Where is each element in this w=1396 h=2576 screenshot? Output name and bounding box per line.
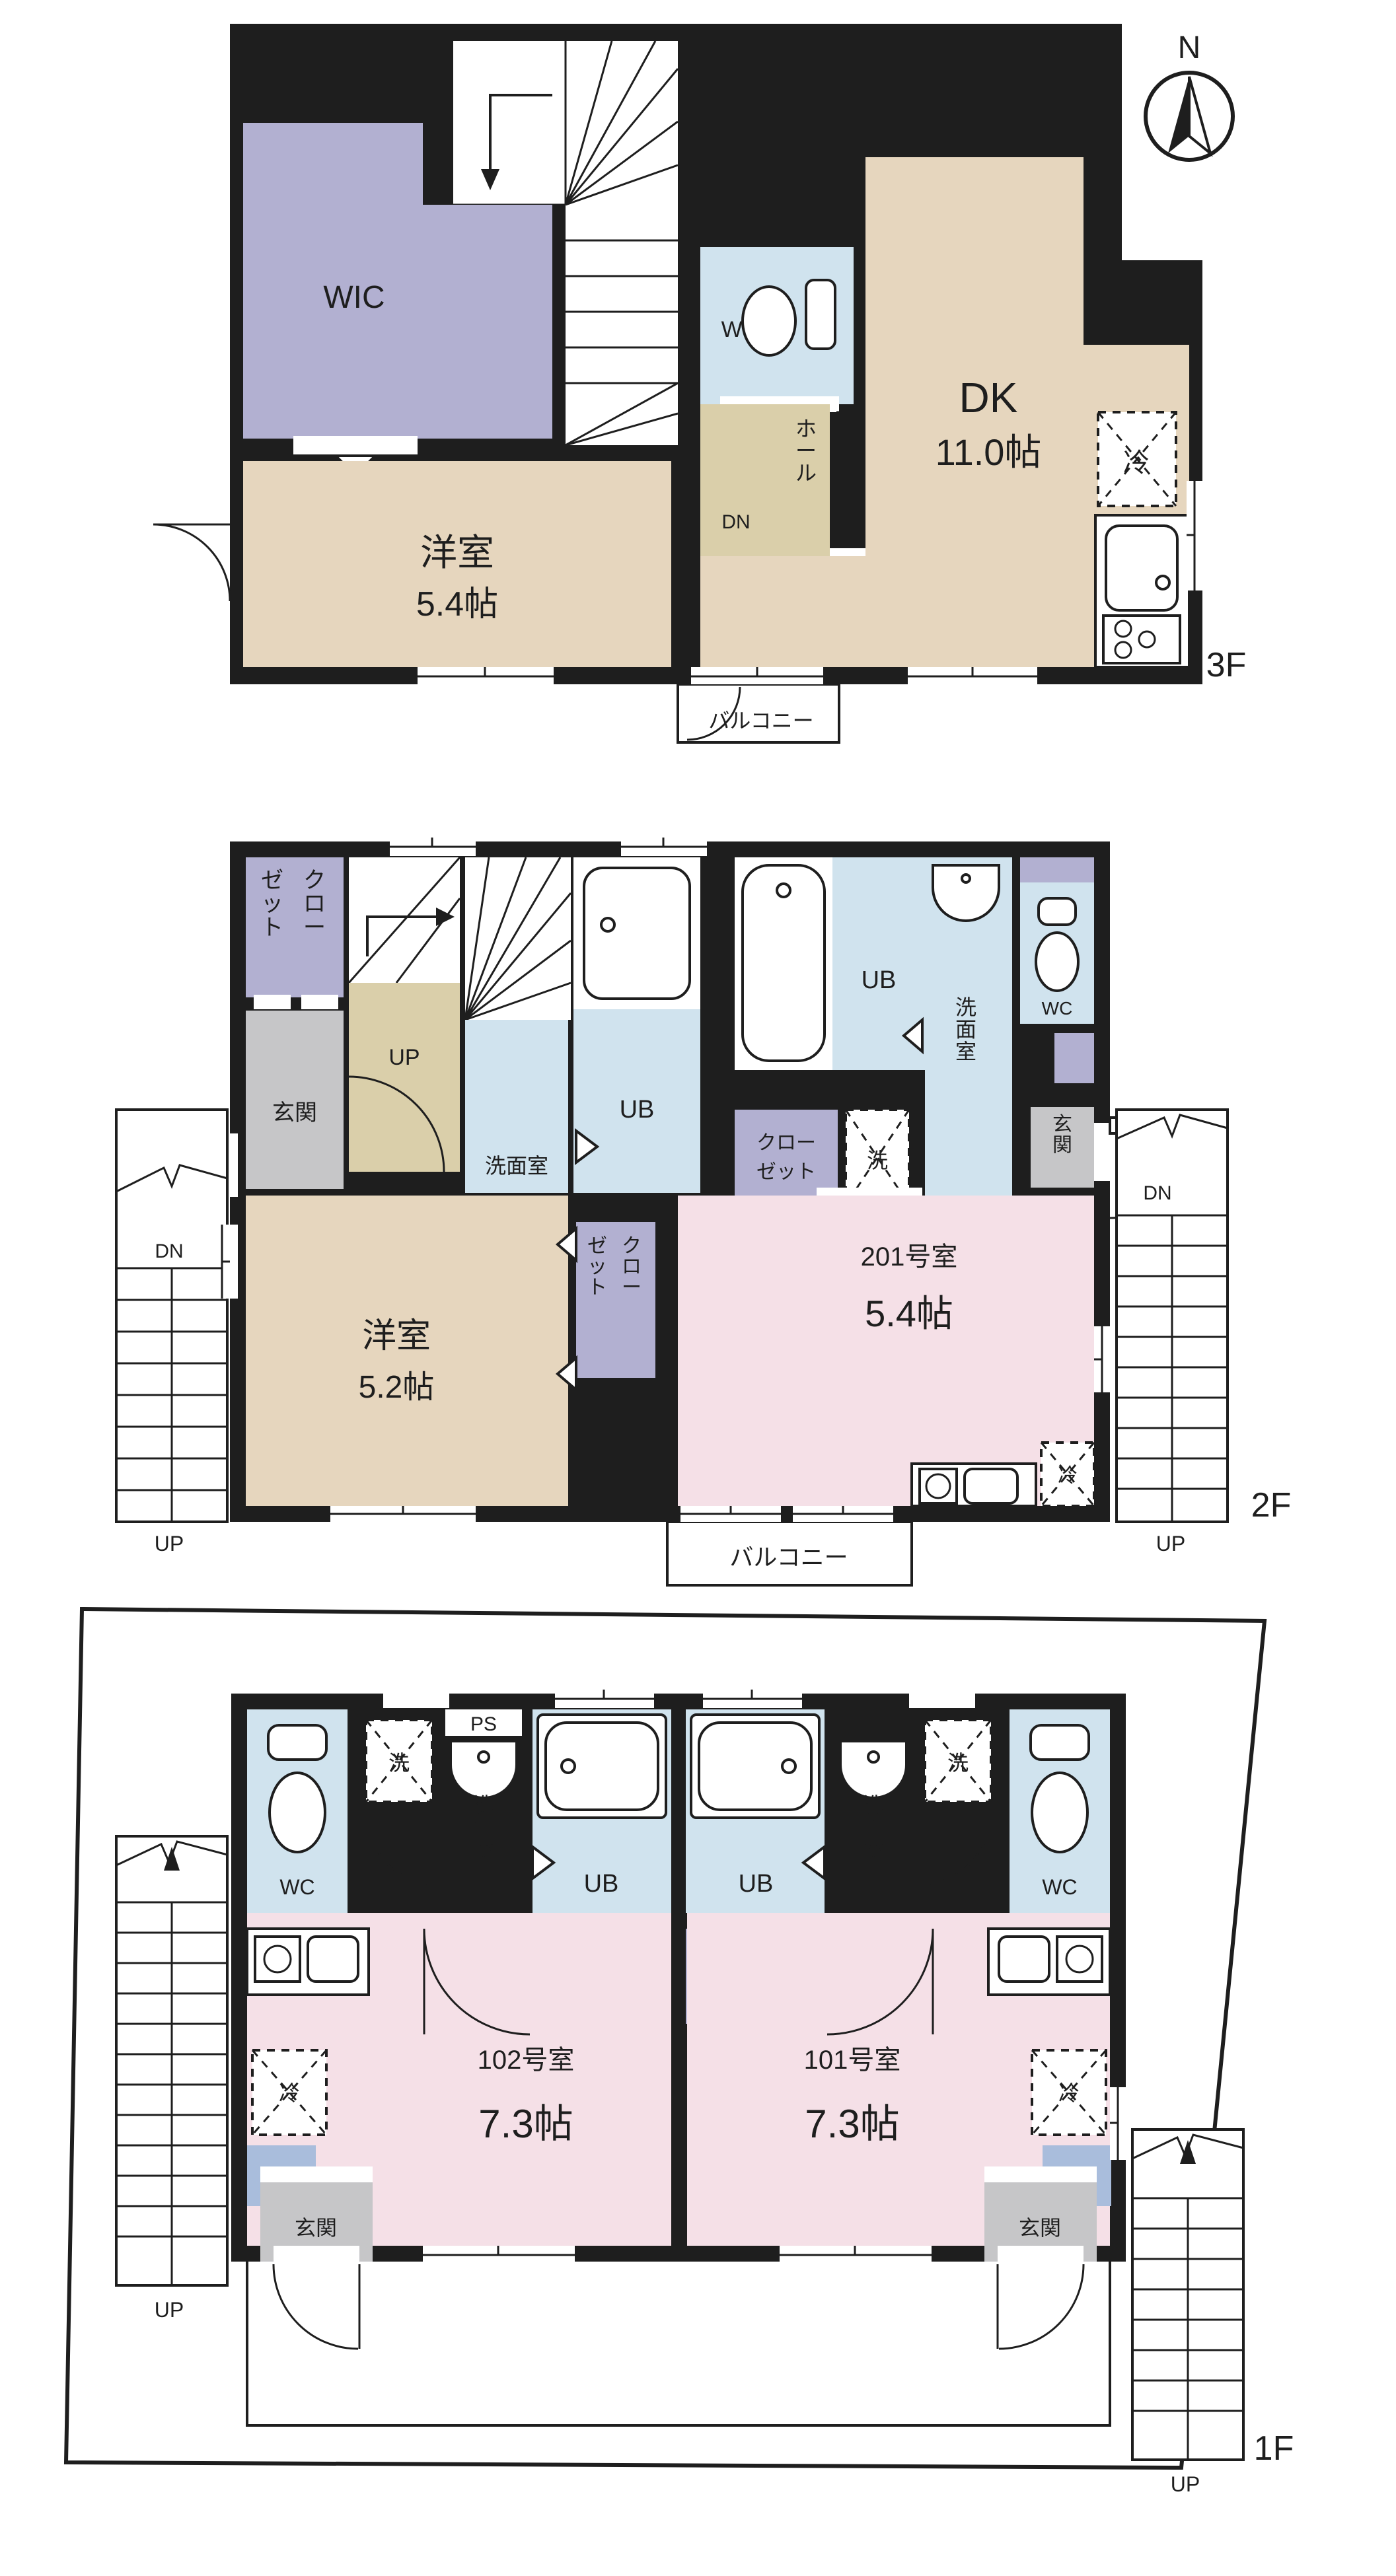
1f-room102-label: 102号室 (478, 2046, 575, 2075)
2f-ext-stairs-left: DN UP (116, 1110, 227, 1556)
svg-text:UP: UP (155, 2298, 184, 2322)
svg-text:洗面室: 洗面室 (863, 1793, 884, 1861)
2f-up-label: UP (388, 1045, 420, 1070)
svg-text:PS: PS (470, 1713, 497, 1735)
svg-text:玄関: 玄関 (295, 2216, 337, 2240)
svg-text:ゼット: ゼット (756, 1161, 816, 1183)
2f-kitchen (912, 1464, 1036, 1506)
svg-text:洗: 洗 (947, 1751, 969, 1775)
3f-fridge-icon: 冷 (1098, 412, 1176, 506)
svg-text:玄関: 玄関 (272, 1100, 317, 1126)
svg-text:玄関: 玄関 (1052, 1114, 1072, 1157)
1f-ext-stairs-left: UP (116, 1836, 227, 2322)
floor-plan-image: WIC WC DN ホール DK (0, 0, 1396, 2576)
svg-text:UB: UB (739, 1870, 774, 1898)
3f-balcony: バルコニー (678, 667, 839, 742)
svg-text:冷: 冷 (279, 2081, 300, 2105)
3f-room-wc: WC (700, 247, 854, 412)
2f-yoshitsu-size: 5.2帖 (359, 1370, 435, 1405)
3f-dn-label: DN (721, 511, 750, 533)
floor-1f: WC 洗 PS 洗面室 UB (66, 1609, 1294, 2496)
1f-porch-outline (247, 2262, 1110, 2425)
1f-fridge-left: 冷 (252, 2050, 326, 2135)
1f-genkan-left: 玄関 (260, 2166, 373, 2349)
svg-text:UP: UP (155, 1532, 184, 1556)
1f-kitchen-right (988, 1929, 1110, 1995)
2f-up-hall: UP (349, 983, 460, 1172)
svg-text:WC: WC (1042, 998, 1073, 1019)
svg-text:DN: DN (1143, 1182, 1171, 1204)
3f-kitchen (1095, 515, 1189, 667)
svg-text:冷: 冷 (1123, 448, 1150, 478)
svg-text:ゼット: ゼット (261, 868, 283, 940)
2f-senmen-left: 洗面室 (465, 1020, 568, 1193)
svg-text:洗: 洗 (388, 1751, 410, 1775)
1f-room-wc-right: WC (1010, 1709, 1110, 1913)
1f-fridge-right: 冷 (1032, 2050, 1106, 2135)
1f-ps: PS (445, 1709, 522, 1736)
svg-text:クロー: クロー (756, 1132, 816, 1154)
2f-ext-stairs-right: DN UP (1117, 1110, 1228, 1556)
svg-text:洗面室: 洗面室 (955, 995, 976, 1063)
svg-text:UB: UB (620, 1096, 655, 1124)
3f-yoshitsu-size: 5.4帖 (416, 585, 498, 624)
1f-genkan-right: 玄関 (984, 2166, 1097, 2349)
3f-wic-label: WIC (323, 280, 385, 315)
1f-ub-left: UB (533, 1709, 671, 1913)
2f-room-yoshitsu: 洋室 5.2帖 (222, 1196, 568, 1522)
svg-text:洗面室: 洗面室 (473, 1793, 494, 1861)
svg-text:洗面室: 洗面室 (485, 1154, 548, 1178)
svg-text:DN: DN (155, 1240, 183, 1262)
1f-room102-size: 7.3帖 (478, 2102, 573, 2146)
compass-icon: N (1146, 30, 1233, 160)
3f-dk-size: 11.0帖 (936, 431, 1042, 473)
2f-room201-label: 201号室 (861, 1242, 958, 1271)
svg-text:UP: UP (1156, 1532, 1185, 1556)
2f-yoshitsu-label: 洋室 (362, 1317, 431, 1355)
2f-room201-size: 5.4帖 (865, 1293, 953, 1334)
1f-ub-right: UB (686, 1709, 825, 1913)
compass-n: N (1178, 30, 1201, 65)
2f-ub-right: UB (735, 857, 925, 1070)
1f-room101-label: 101号室 (804, 2046, 901, 2075)
3f-yoshitsu-label: 洋室 (420, 532, 494, 573)
svg-text:WC: WC (279, 1875, 314, 1899)
1f-kitchen-left (247, 1929, 369, 1995)
2f-fridge-icon: 冷 (1041, 1443, 1094, 1506)
svg-text:UB: UB (584, 1870, 619, 1898)
svg-text:クロー: クロー (622, 1235, 642, 1299)
2f-room-201: 201号室 5.4帖 冷 (678, 1196, 1110, 1506)
1f-room101-size: 7.3帖 (805, 2102, 899, 2146)
1f-ext-stairs-right: UP (1132, 2129, 1243, 2496)
2f-ub-left: UB (573, 857, 700, 1193)
svg-text:WC: WC (1042, 1875, 1077, 1899)
3f-hall-label: ホール (795, 417, 817, 485)
svg-text:ゼット: ゼット (587, 1235, 607, 1299)
3f-dk-label: DK (959, 374, 1018, 421)
2f-closet-topleft: クロー ゼット (246, 857, 344, 1009)
svg-text:冷: 冷 (1058, 2081, 1080, 2105)
svg-text:玄関: 玄関 (1019, 2216, 1061, 2240)
svg-text:クロー: クロー (303, 868, 326, 940)
2f-floor-label: 2F (1251, 1486, 1292, 1524)
1f-floor-label: 1F (1254, 2429, 1294, 2468)
svg-text:UB: UB (862, 966, 897, 994)
1f-room-wc-left: WC (247, 1709, 348, 1913)
svg-text:UP: UP (1171, 2472, 1200, 2496)
3f-floor-label: 3F (1206, 646, 1247, 684)
3f-balcony-label: バルコニー (708, 709, 813, 733)
floor-2f: クロー ゼット UP 玄関 (116, 838, 1291, 1585)
floor-3f: WIC WC DN ホール DK (153, 24, 1246, 742)
svg-text:洗: 洗 (867, 1149, 888, 1172)
3f-room-yoshitsu: 洋室 5.4帖 (243, 461, 671, 667)
svg-text:冷: 冷 (1058, 1465, 1078, 1487)
2f-balcony-label: バルコニー (729, 1544, 848, 1571)
